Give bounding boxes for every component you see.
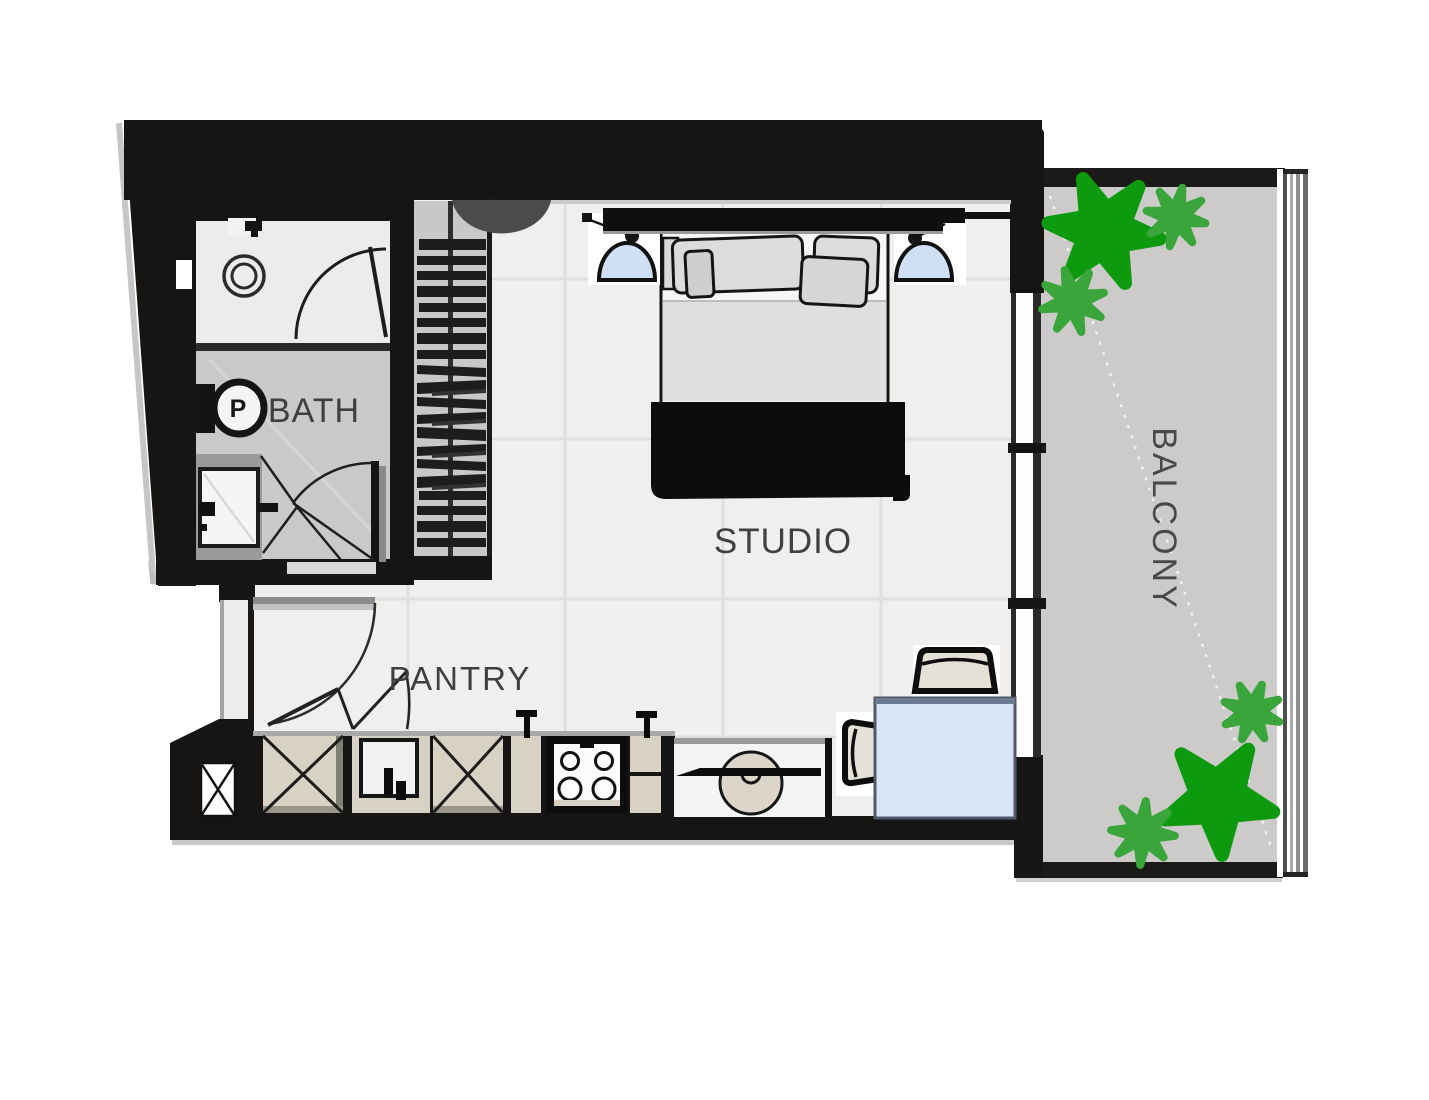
svg-text:PANTRY: PANTRY bbox=[389, 660, 532, 697]
svg-text:BALCONY: BALCONY bbox=[1145, 427, 1183, 611]
svg-text:STUDIO: STUDIO bbox=[714, 522, 852, 561]
svg-text:P: P bbox=[230, 395, 247, 423]
svg-text:BATH: BATH bbox=[268, 392, 360, 430]
